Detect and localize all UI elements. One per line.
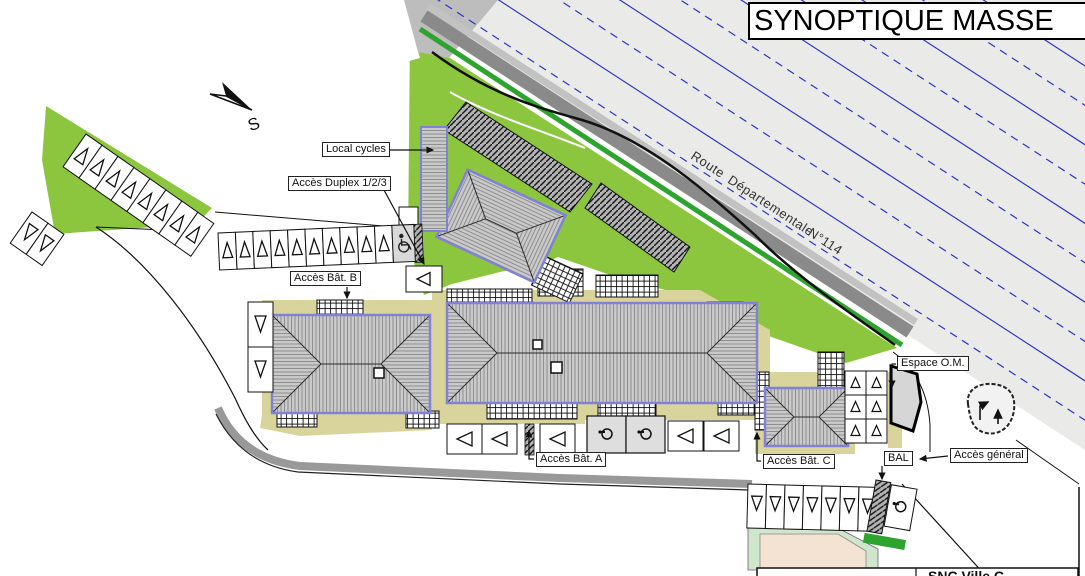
site-plan-canvas: SNC Ville C S Route Départementale N°114	[0, 0, 1085, 576]
title-block: SNC Ville C	[757, 568, 1078, 576]
title-block-company-text: SNC Ville C	[928, 568, 1004, 576]
label-acces-general: Accès général	[950, 448, 1028, 463]
label-acces-duplex: Accès Duplex 1/2/3	[288, 176, 391, 191]
north-arrow-icon: S	[210, 82, 262, 135]
page-title: SYNOPTIQUE MASSE	[748, 2, 1085, 40]
building-local-cycles	[421, 127, 447, 231]
moto-parking-stall	[626, 416, 665, 453]
chimney	[533, 340, 542, 349]
site-plan-page: SNC Ville C S Route Départementale N°114…	[0, 0, 1085, 576]
accessible-parking-stall	[392, 224, 416, 262]
label-bal: BAL	[884, 451, 913, 466]
compass-direction-label: S	[245, 113, 262, 135]
label-espace-om: Espace O.M.	[897, 356, 969, 371]
building-bat-c	[765, 388, 848, 446]
moto-parking-stall	[587, 416, 626, 453]
building-bat-a	[447, 303, 757, 403]
espace-om-enclosure	[891, 366, 921, 431]
label-local-cycles: Local cycles	[322, 142, 390, 157]
label-acces-bat-c: Accès Bât. C	[763, 454, 835, 469]
traffic-island	[968, 384, 1015, 434]
parking-block-east	[845, 371, 887, 443]
parking-row-bat-b-west	[248, 302, 273, 392]
parking-row-southeast	[747, 484, 878, 531]
label-acces-bat-b: Accès Bât. B	[290, 271, 361, 286]
label-acces-bat-a: Accès Bât. A	[536, 452, 606, 467]
chimney	[551, 362, 562, 373]
parking-row-central	[218, 224, 423, 271]
parking-stall-duplex-entry	[406, 266, 442, 292]
building-bat-b	[272, 315, 430, 413]
chimney	[374, 368, 384, 378]
